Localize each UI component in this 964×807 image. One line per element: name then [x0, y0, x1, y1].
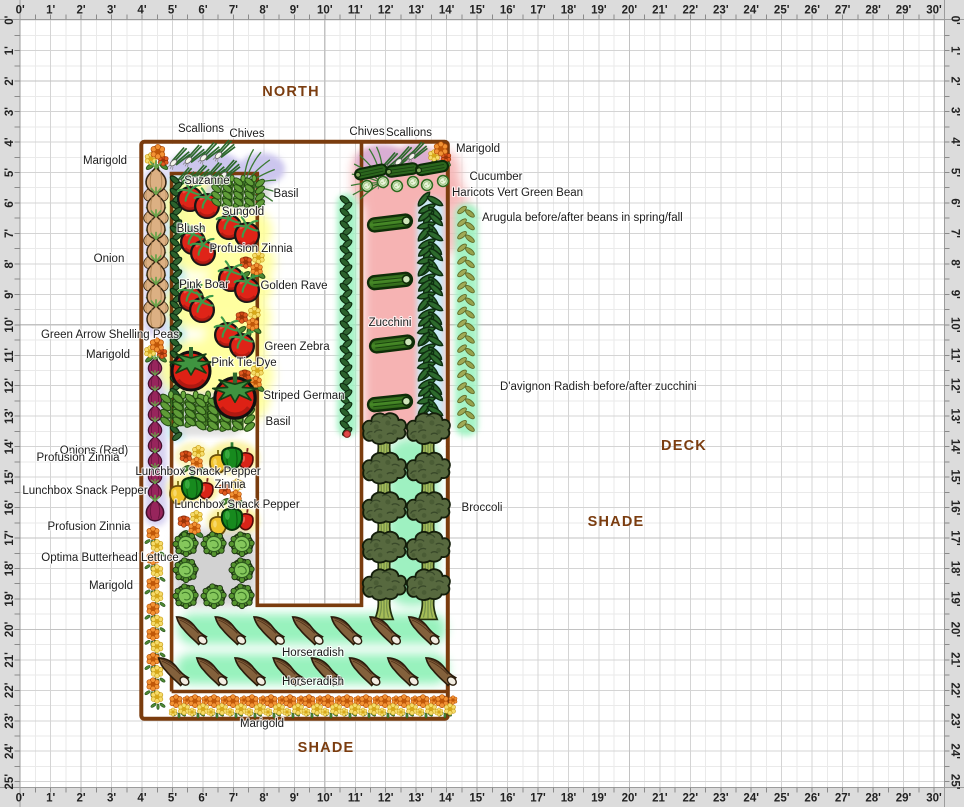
svg-text:20': 20' [949, 622, 961, 638]
svg-text:D'avignon Radish before/after: D'avignon Radish before/after zucchini [500, 381, 697, 393]
svg-text:SHADE: SHADE [298, 740, 355, 756]
svg-text:19': 19' [591, 5, 607, 17]
svg-text:6': 6' [198, 793, 207, 805]
svg-text:Basil: Basil [274, 188, 299, 200]
svg-text:8': 8' [949, 259, 961, 268]
svg-text:12': 12' [4, 378, 16, 394]
svg-text:1': 1' [4, 46, 16, 55]
svg-text:20': 20' [4, 621, 16, 637]
svg-text:Horseradish: Horseradish [282, 676, 344, 688]
svg-text:1': 1' [46, 5, 55, 17]
svg-text:23': 23' [713, 5, 729, 17]
svg-text:24': 24' [743, 5, 759, 17]
svg-text:13': 13' [949, 408, 961, 424]
svg-text:18': 18' [4, 560, 16, 576]
svg-text:23': 23' [949, 713, 961, 729]
svg-text:21': 21' [652, 793, 668, 805]
svg-text:30': 30' [926, 5, 942, 17]
svg-text:Golden Rave: Golden Rave [260, 280, 327, 292]
svg-text:22': 22' [683, 793, 699, 805]
svg-text:17': 17' [530, 793, 546, 805]
svg-text:13': 13' [408, 5, 424, 17]
svg-text:7': 7' [949, 229, 961, 238]
svg-text:Marigold: Marigold [456, 143, 500, 155]
svg-text:26': 26' [804, 793, 820, 805]
svg-text:13': 13' [408, 793, 424, 805]
svg-text:Lunchbox Snack Pepper: Lunchbox Snack Pepper [135, 466, 260, 478]
svg-text:26': 26' [804, 5, 820, 17]
svg-text:17': 17' [949, 530, 961, 546]
svg-text:Lunchbox Snack Pepper: Lunchbox Snack Pepper [22, 485, 147, 497]
svg-text:Profusion Zinnia: Profusion Zinnia [36, 452, 120, 464]
svg-text:12': 12' [378, 5, 394, 17]
svg-text:15': 15' [4, 469, 16, 485]
svg-text:8': 8' [259, 5, 268, 17]
svg-text:3': 3' [949, 107, 961, 116]
svg-text:23': 23' [4, 713, 16, 729]
svg-text:Pink Tie-Dye: Pink Tie-Dye [211, 357, 276, 369]
svg-text:19': 19' [4, 591, 16, 607]
svg-text:6': 6' [949, 198, 961, 207]
svg-text:Lunchbox Snack Pepper: Lunchbox Snack Pepper [174, 499, 299, 511]
svg-text:9': 9' [4, 289, 16, 298]
svg-text:16': 16' [500, 5, 516, 17]
svg-text:11': 11' [949, 348, 961, 363]
svg-text:17': 17' [4, 530, 16, 546]
svg-text:23': 23' [713, 793, 729, 805]
svg-text:14': 14' [439, 5, 455, 17]
svg-text:19': 19' [591, 793, 607, 805]
svg-text:5': 5' [168, 793, 177, 805]
svg-text:Scallions: Scallions [386, 127, 432, 139]
svg-text:21': 21' [949, 652, 961, 668]
svg-text:3': 3' [107, 793, 116, 805]
svg-text:24': 24' [743, 793, 759, 805]
svg-text:14': 14' [949, 439, 961, 455]
svg-text:Marigold: Marigold [83, 155, 127, 167]
svg-text:4': 4' [4, 137, 16, 146]
svg-text:3': 3' [107, 5, 116, 17]
svg-text:9': 9' [290, 5, 299, 17]
svg-text:1': 1' [46, 793, 55, 805]
svg-text:Onion: Onion [94, 253, 125, 265]
svg-text:0': 0' [16, 5, 25, 17]
svg-text:25': 25' [774, 5, 790, 17]
svg-text:Basil: Basil [266, 416, 291, 428]
svg-text:10': 10' [317, 5, 333, 17]
svg-text:19': 19' [949, 591, 961, 607]
svg-text:25': 25' [4, 774, 16, 790]
svg-text:7': 7' [4, 229, 16, 238]
svg-text:Marigold: Marigold [89, 580, 133, 592]
svg-text:20': 20' [622, 5, 638, 17]
svg-text:21': 21' [4, 652, 16, 668]
svg-text:Chives: Chives [229, 128, 264, 140]
svg-text:Profusion Zinnia: Profusion Zinnia [209, 243, 293, 255]
svg-text:15': 15' [469, 793, 485, 805]
svg-text:NORTH: NORTH [262, 84, 320, 100]
svg-text:0': 0' [4, 15, 16, 24]
svg-text:28': 28' [865, 793, 881, 805]
svg-text:18': 18' [561, 793, 577, 805]
svg-text:24': 24' [4, 743, 16, 759]
svg-text:7': 7' [229, 793, 238, 805]
svg-text:8': 8' [259, 793, 268, 805]
svg-text:4': 4' [949, 137, 961, 146]
svg-text:15': 15' [469, 5, 485, 17]
svg-text:18': 18' [949, 561, 961, 577]
svg-text:SHADE: SHADE [588, 514, 645, 530]
svg-text:13': 13' [4, 408, 16, 424]
svg-text:12': 12' [378, 793, 394, 805]
svg-text:Chives: Chives [349, 126, 384, 138]
svg-text:11': 11' [348, 5, 363, 17]
svg-text:27': 27' [835, 793, 851, 805]
svg-text:18': 18' [561, 5, 577, 17]
svg-text:4': 4' [137, 793, 146, 805]
svg-text:3': 3' [4, 107, 16, 116]
svg-text:29': 29' [896, 793, 912, 805]
svg-text:Scallions: Scallions [178, 123, 224, 135]
svg-text:9': 9' [290, 793, 299, 805]
svg-text:Sungold: Sungold [222, 206, 264, 218]
svg-text:5': 5' [168, 5, 177, 17]
svg-text:27': 27' [835, 5, 851, 17]
svg-text:22': 22' [949, 683, 961, 699]
svg-text:7': 7' [229, 5, 238, 17]
svg-text:11': 11' [348, 793, 363, 805]
svg-text:16': 16' [500, 793, 516, 805]
svg-text:12': 12' [949, 378, 961, 394]
svg-text:Pink Boar: Pink Boar [179, 279, 229, 291]
svg-text:Marigold: Marigold [240, 718, 284, 730]
svg-text:16': 16' [949, 500, 961, 516]
svg-text:6': 6' [4, 198, 16, 207]
svg-text:1': 1' [949, 46, 961, 55]
svg-text:9': 9' [949, 290, 961, 299]
svg-text:Broccoli: Broccoli [462, 502, 503, 514]
svg-text:Horseradish: Horseradish [282, 647, 344, 659]
svg-text:25': 25' [774, 793, 790, 805]
svg-text:2': 2' [4, 76, 16, 85]
svg-text:14': 14' [4, 439, 16, 455]
svg-text:8': 8' [4, 259, 16, 268]
svg-text:22': 22' [4, 682, 16, 698]
svg-text:Zucchini: Zucchini [369, 317, 412, 329]
svg-text:10': 10' [949, 317, 961, 333]
svg-text:30': 30' [926, 793, 942, 805]
svg-text:10': 10' [317, 793, 333, 805]
svg-text:Cucumber: Cucumber [469, 171, 522, 183]
svg-text:20': 20' [622, 793, 638, 805]
svg-text:Green Zebra: Green Zebra [264, 341, 330, 353]
svg-text:Haricots Vert Green Bean: Haricots Vert Green Bean [452, 187, 583, 199]
svg-text:0': 0' [949, 16, 961, 25]
svg-text:16': 16' [4, 500, 16, 516]
svg-text:Zinnia: Zinnia [214, 479, 246, 491]
svg-text:0': 0' [16, 793, 25, 805]
svg-text:28': 28' [865, 5, 881, 17]
svg-text:29': 29' [896, 5, 912, 17]
svg-text:Profusion Zinnia: Profusion Zinnia [47, 521, 131, 533]
svg-text:5': 5' [4, 168, 16, 177]
svg-text:21': 21' [652, 5, 668, 17]
svg-text:2': 2' [77, 5, 86, 17]
svg-text:5': 5' [949, 168, 961, 177]
svg-text:Arugula before/after beans in: Arugula before/after beans in spring/fal… [482, 212, 683, 224]
svg-text:Marigold: Marigold [86, 349, 130, 361]
svg-text:17': 17' [530, 5, 546, 17]
svg-text:11': 11' [4, 348, 16, 363]
svg-text:Green Arrow Shelling Peas: Green Arrow Shelling Peas [41, 329, 179, 341]
svg-text:Blush: Blush [177, 223, 206, 235]
svg-text:14': 14' [439, 793, 455, 805]
svg-text:15': 15' [949, 469, 961, 485]
svg-text:Suzanne: Suzanne [184, 175, 229, 187]
svg-text:2': 2' [77, 793, 86, 805]
svg-text:DECK: DECK [661, 438, 707, 454]
svg-text:2': 2' [949, 77, 961, 86]
svg-text:4': 4' [137, 5, 146, 17]
svg-text:10': 10' [4, 317, 16, 333]
svg-text:Optima Butterhead Lettuce: Optima Butterhead Lettuce [41, 552, 178, 564]
svg-text:6': 6' [198, 5, 207, 17]
svg-text:25': 25' [949, 774, 961, 790]
svg-text:Striped German: Striped German [263, 390, 344, 402]
svg-text:22': 22' [683, 5, 699, 17]
svg-text:24': 24' [949, 743, 961, 759]
